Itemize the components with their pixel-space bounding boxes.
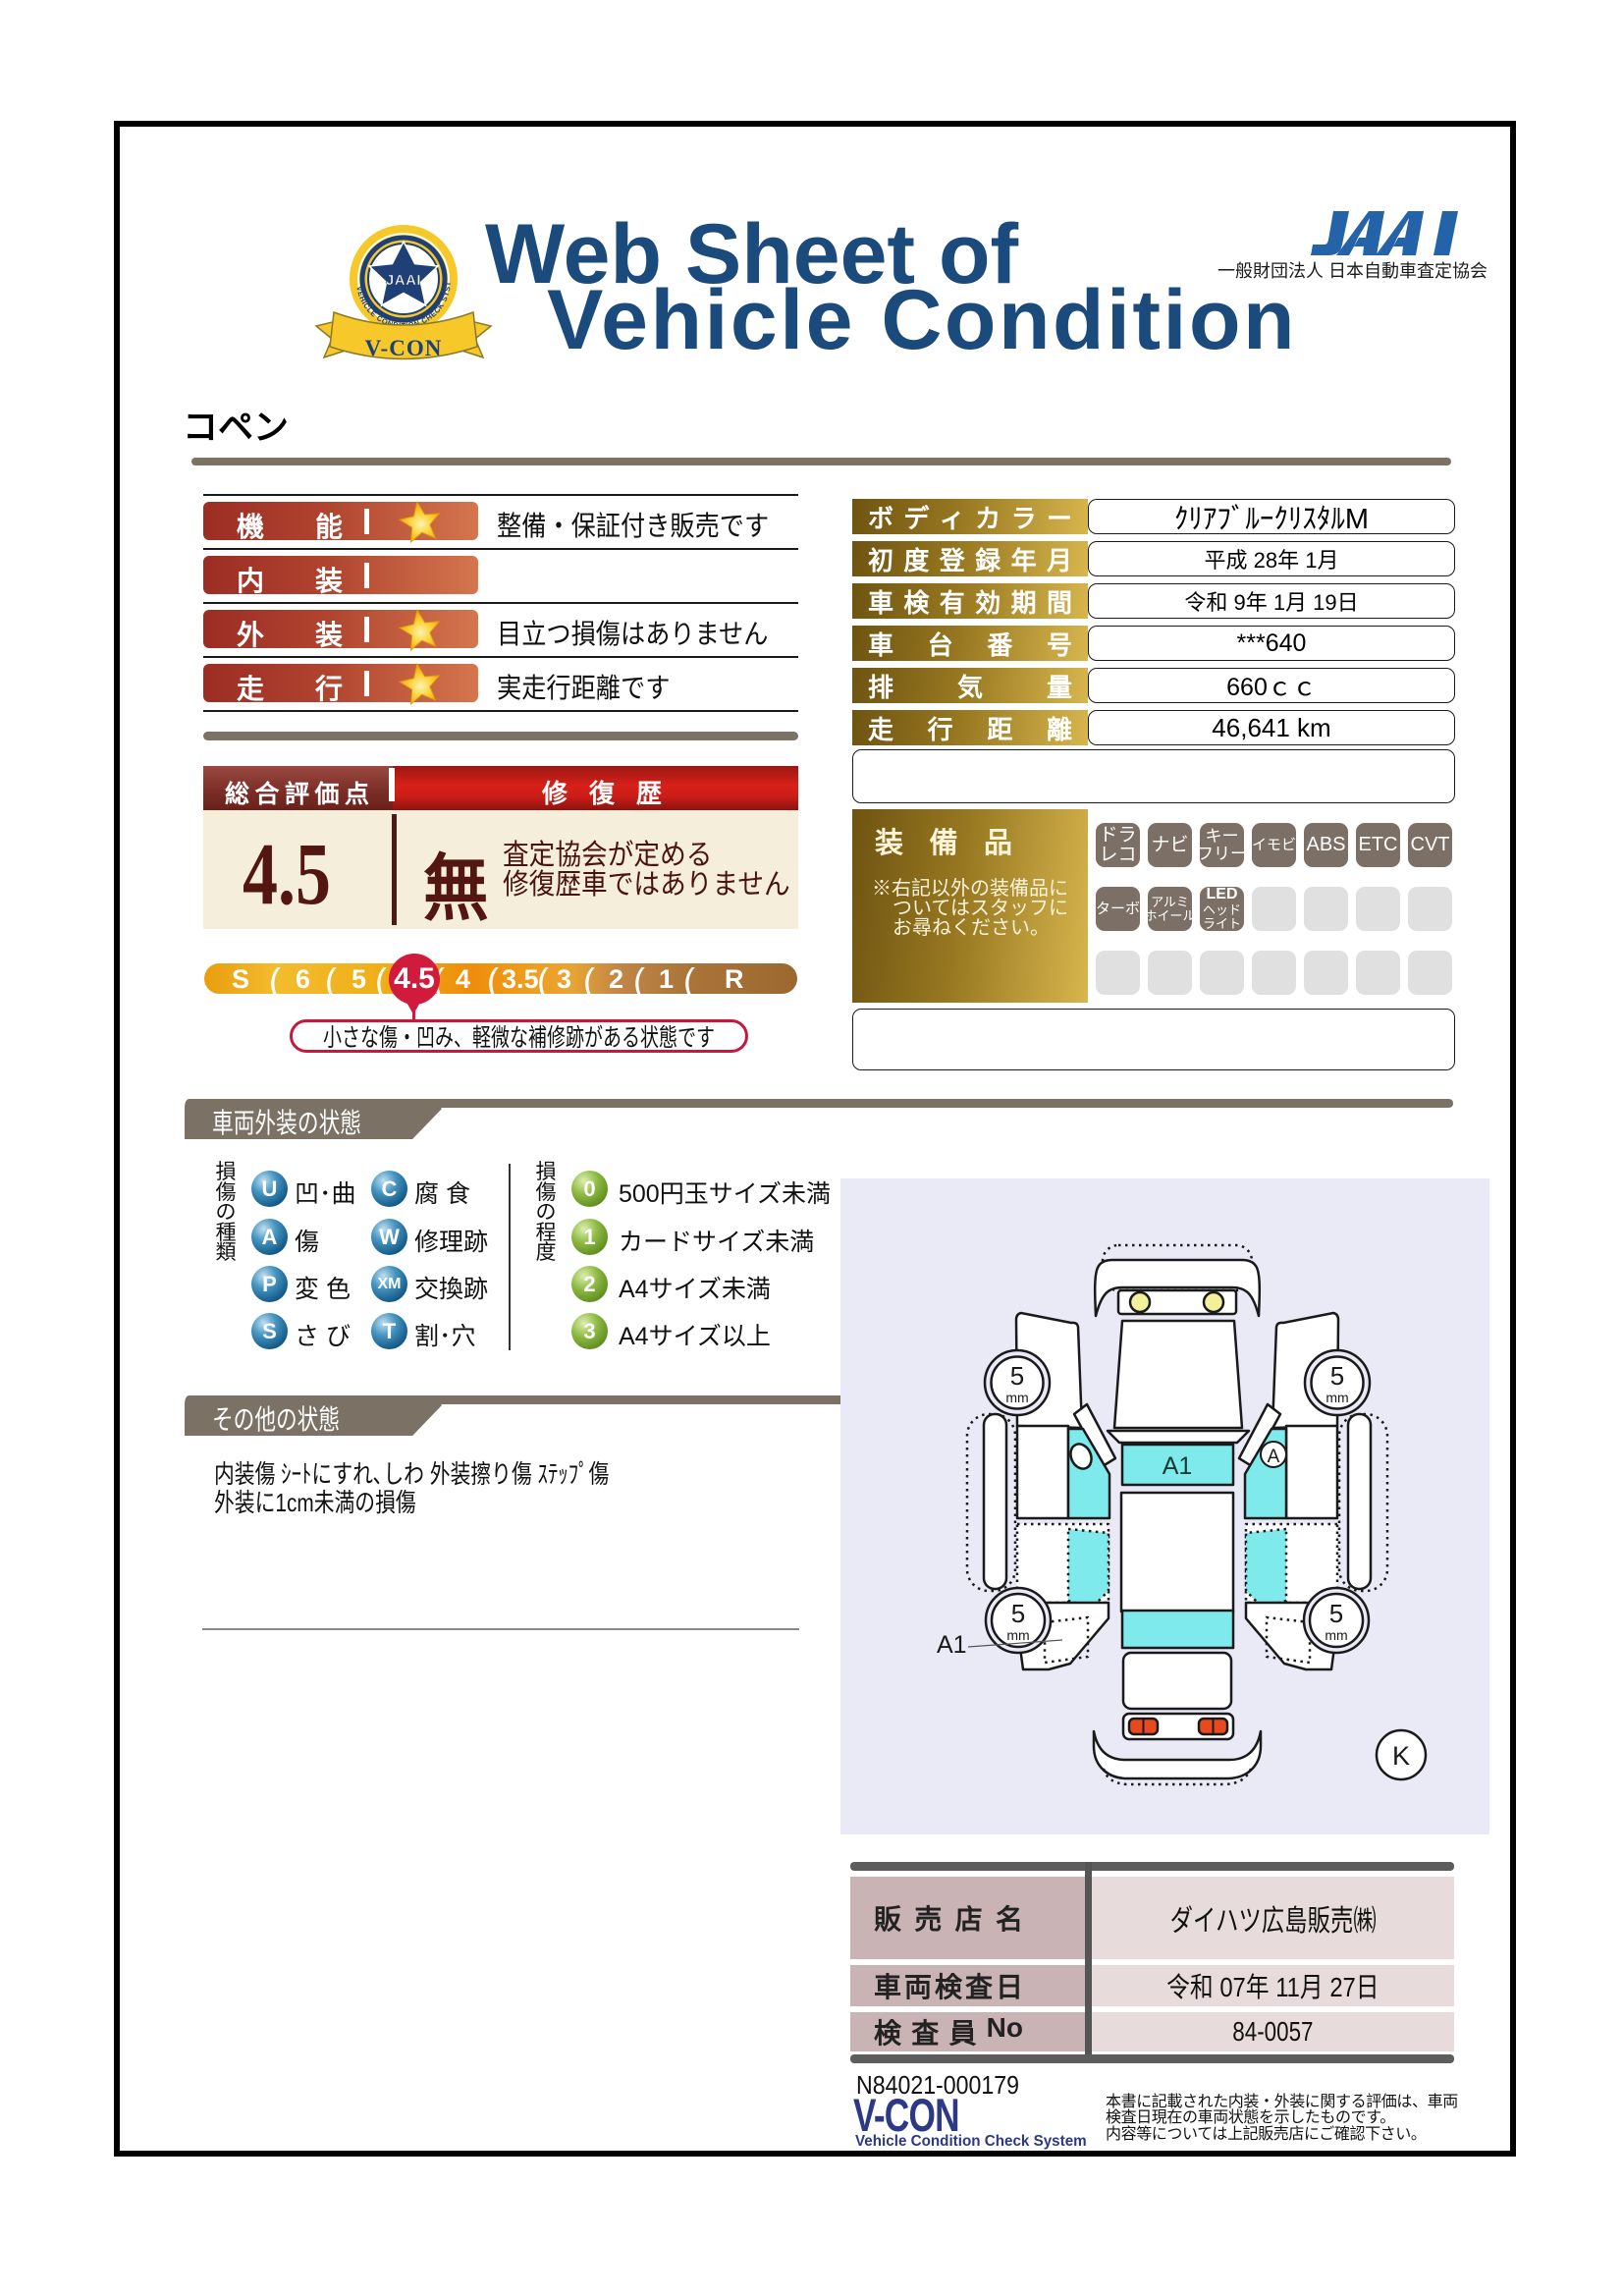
svg-text:K: K [1392, 1741, 1410, 1771]
svg-text:5: 5 [1010, 1361, 1024, 1391]
svg-text:mm: mm [1325, 1627, 1347, 1643]
svg-text:A1: A1 [937, 1631, 967, 1659]
svg-text:車両外装の状態: 車両外装の状態 [212, 1108, 361, 1138]
svg-text:mm: mm [1006, 1627, 1029, 1643]
svg-text:mm: mm [1005, 1390, 1028, 1405]
svg-text:5: 5 [1330, 1361, 1344, 1391]
svg-text:その他の状態: その他の状態 [212, 1404, 340, 1435]
svg-text:A1: A1 [1163, 1452, 1193, 1480]
svg-text:A: A [1268, 1447, 1280, 1467]
svg-text:JAAI: JAAI [386, 272, 421, 289]
svg-text:5: 5 [1011, 1599, 1025, 1628]
svg-text:V-CON: V-CON [365, 336, 443, 360]
svg-text:mm: mm [1325, 1390, 1348, 1405]
svg-text:5: 5 [1329, 1599, 1343, 1628]
